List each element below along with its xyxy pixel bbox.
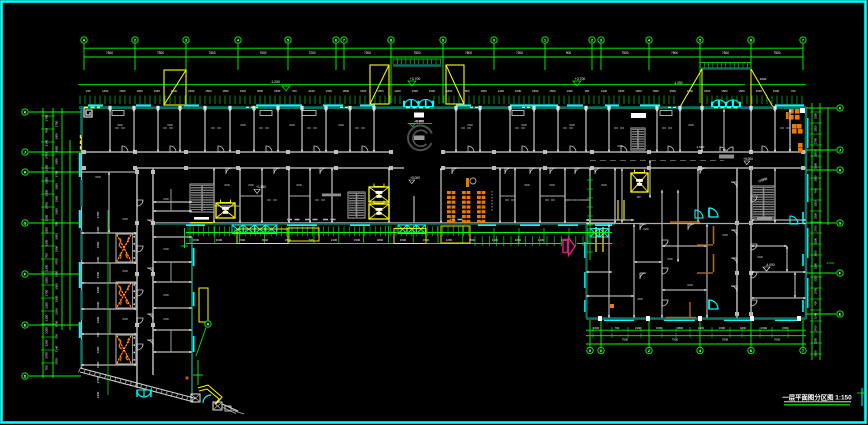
svg-text:7500: 7500 — [208, 51, 215, 55]
svg-text:2: 2 — [648, 349, 650, 353]
svg-text:1500: 1500 — [480, 89, 487, 93]
svg-text:DT: DT — [637, 195, 641, 199]
svg-text:1500: 1500 — [782, 326, 788, 330]
svg-text:2260: 2260 — [45, 339, 49, 346]
svg-text:1500: 1500 — [360, 89, 367, 93]
svg-text:G: G — [24, 221, 27, 225]
svg-text:3300: 3300 — [814, 162, 818, 169]
svg-text:1500: 1500 — [515, 89, 522, 93]
svg-text:7500: 7500 — [259, 51, 266, 55]
svg-text:3300: 3300 — [467, 123, 473, 127]
svg-text:3300: 3300 — [814, 212, 818, 219]
svg-text:1500: 1500 — [205, 89, 212, 93]
svg-text:2700: 2700 — [45, 289, 49, 296]
svg-text:3300: 3300 — [814, 262, 818, 269]
svg-text:4: 4 — [648, 38, 650, 42]
svg-text:1: 1 — [544, 38, 546, 42]
svg-text:1500: 1500 — [635, 89, 642, 93]
svg-text:1500: 1500 — [593, 326, 599, 330]
svg-text:3300: 3300 — [338, 123, 344, 127]
svg-text:1500: 1500 — [773, 89, 780, 93]
svg-text:2260: 2260 — [814, 275, 818, 282]
svg-text:6: 6 — [335, 38, 337, 42]
svg-text:3300: 3300 — [45, 327, 49, 334]
svg-text:1500: 1500 — [698, 326, 704, 330]
svg-text:1500: 1500 — [719, 326, 725, 330]
svg-text:3300: 3300 — [55, 283, 59, 290]
svg-text:7: 7 — [802, 349, 804, 353]
svg-text:3300: 3300 — [96, 346, 100, 353]
svg-text:+3.700: +3.700 — [575, 77, 586, 81]
svg-text:700: 700 — [615, 326, 620, 330]
svg-text:3300: 3300 — [637, 297, 643, 301]
svg-text:2: 2 — [591, 38, 593, 42]
svg-text:7200: 7200 — [308, 51, 315, 55]
svg-text:700: 700 — [96, 332, 100, 337]
svg-text:3300: 3300 — [122, 269, 128, 273]
svg-text:1500: 1500 — [721, 89, 728, 93]
svg-text:0: 0 — [600, 349, 602, 353]
svg-text:2700: 2700 — [96, 211, 100, 218]
svg-text:1500: 1500 — [216, 238, 223, 242]
svg-text:3300: 3300 — [55, 158, 59, 165]
svg-text:700: 700 — [45, 128, 49, 133]
svg-text:3300: 3300 — [643, 227, 649, 231]
svg-text:2700: 2700 — [814, 137, 818, 144]
svg-text:5: 5 — [287, 38, 289, 42]
svg-text:7500: 7500 — [621, 51, 628, 55]
svg-text:4500: 4500 — [257, 89, 264, 93]
svg-text:J: J — [839, 148, 841, 152]
svg-text:3300: 3300 — [96, 361, 100, 368]
svg-text:3300: 3300 — [240, 123, 246, 127]
svg-text:3300: 3300 — [667, 257, 673, 261]
svg-text:7500: 7500 — [774, 337, 781, 341]
svg-text:9: 9 — [442, 38, 444, 42]
svg-text:150: 150 — [86, 89, 91, 93]
svg-text:1500: 1500 — [136, 89, 143, 93]
svg-text:3700: 3700 — [45, 352, 49, 359]
svg-text:700: 700 — [292, 89, 297, 93]
svg-text:-3.600: -3.600 — [826, 261, 835, 265]
svg-text:3: 3 — [600, 38, 602, 42]
svg-text:3300: 3300 — [549, 183, 555, 187]
svg-text:1500: 1500 — [326, 89, 333, 93]
svg-text:4: 4 — [699, 349, 701, 353]
svg-text:1500: 1500 — [492, 238, 499, 242]
svg-text:3300: 3300 — [55, 195, 59, 202]
svg-text:3300: 3300 — [814, 337, 818, 344]
svg-text:3300: 3300 — [296, 183, 302, 187]
svg-text:7500: 7500 — [671, 51, 678, 55]
svg-text:2100: 2100 — [635, 326, 641, 330]
svg-text:5: 5 — [699, 38, 701, 42]
svg-text:8: 8 — [390, 38, 392, 42]
svg-text:3300: 3300 — [814, 237, 818, 244]
svg-text:4: 4 — [237, 38, 239, 42]
svg-text:3300: 3300 — [289, 123, 295, 127]
svg-text:3300: 3300 — [122, 317, 128, 321]
svg-text:2700: 2700 — [45, 202, 49, 209]
svg-text:+0.250: +0.250 — [414, 119, 424, 123]
svg-text:700: 700 — [814, 301, 818, 306]
svg-text:0: 0 — [493, 38, 495, 42]
svg-text:700: 700 — [814, 188, 818, 193]
svg-text:1200: 1200 — [446, 238, 453, 242]
svg-text:7500: 7500 — [722, 51, 729, 55]
svg-text:3300: 3300 — [45, 164, 49, 171]
svg-text:3: 3 — [185, 38, 187, 42]
svg-text:7: 7 — [802, 38, 804, 42]
svg-text:1500: 1500 — [532, 89, 539, 93]
svg-text:G: G — [839, 221, 842, 225]
svg-text:+0.000: +0.000 — [743, 157, 753, 161]
svg-text:1500: 1500 — [274, 89, 281, 93]
svg-text:3300: 3300 — [248, 183, 254, 187]
svg-text:1500: 1500 — [154, 89, 161, 93]
svg-text:J: J — [24, 150, 26, 154]
svg-text:3300: 3300 — [45, 314, 49, 321]
svg-text:1400: 1400 — [566, 89, 573, 93]
svg-text:3300: 3300 — [45, 264, 49, 271]
svg-text:3300: 3300 — [55, 233, 59, 240]
svg-text:1500: 1500 — [618, 89, 625, 93]
svg-text:7500: 7500 — [622, 337, 629, 341]
svg-text:-1.200: -1.200 — [270, 80, 280, 84]
svg-text:7200: 7200 — [364, 51, 371, 55]
svg-text:1500: 1500 — [738, 89, 745, 93]
svg-text:2700: 2700 — [96, 376, 100, 383]
svg-text:3300: 3300 — [601, 183, 607, 187]
svg-text:700: 700 — [55, 221, 59, 226]
svg-text:7500: 7500 — [106, 51, 113, 55]
svg-text:一层平面图分区图 1:150: 一层平面图分区图 1:150 — [782, 393, 852, 402]
svg-text:2700: 2700 — [814, 325, 818, 332]
svg-text:1500: 1500 — [188, 89, 195, 93]
svg-text:1500: 1500 — [761, 326, 767, 330]
svg-text:7500: 7500 — [773, 51, 780, 55]
svg-text:+1.550: +1.550 — [256, 185, 266, 189]
svg-text:6: 6 — [750, 349, 752, 353]
svg-text:3300: 3300 — [687, 283, 693, 287]
svg-text:3300: 3300 — [757, 255, 763, 259]
svg-text:7500: 7500 — [157, 51, 164, 55]
svg-text:3300: 3300 — [814, 200, 818, 207]
svg-text:3300: 3300 — [45, 302, 49, 309]
svg-text:1500: 1500 — [656, 326, 662, 330]
svg-text:-1.500: -1.500 — [696, 145, 705, 149]
svg-text:3300: 3300 — [45, 277, 49, 284]
svg-text:3700: 3700 — [55, 320, 59, 327]
svg-text:3300: 3300 — [814, 112, 818, 119]
svg-text:3300: 3300 — [167, 123, 173, 127]
svg-text:3300: 3300 — [55, 145, 59, 152]
svg-text:700: 700 — [45, 253, 49, 258]
svg-text:1200: 1200 — [498, 89, 505, 93]
svg-text:9: 9 — [589, 349, 591, 353]
svg-text:3300: 3300 — [45, 177, 49, 184]
svg-text:7500: 7500 — [672, 337, 679, 341]
svg-text:1500: 1500 — [119, 89, 126, 93]
svg-text:7200: 7200 — [516, 51, 523, 55]
svg-text:2: 2 — [134, 38, 136, 42]
svg-text:3300: 3300 — [96, 241, 100, 248]
svg-text:1400: 1400 — [601, 89, 608, 93]
svg-text:3300: 3300 — [814, 125, 818, 132]
svg-text:3300: 3300 — [814, 175, 818, 182]
svg-text:3300: 3300 — [55, 245, 59, 252]
svg-text:4500: 4500 — [756, 89, 763, 93]
svg-text:3300: 3300 — [55, 208, 59, 215]
svg-text:7800: 7800 — [413, 51, 420, 55]
svg-text:3300: 3300 — [95, 175, 101, 179]
svg-text:2100: 2100 — [331, 238, 338, 242]
svg-text:7: 7 — [343, 38, 345, 42]
svg-text:3300: 3300 — [524, 183, 530, 187]
svg-text:3300: 3300 — [521, 123, 527, 127]
svg-text:3300: 3300 — [96, 391, 100, 398]
svg-text:1500: 1500 — [354, 238, 361, 242]
svg-text:4800: 4800 — [343, 89, 350, 93]
svg-text:3300: 3300 — [55, 183, 59, 190]
svg-text:5140: 5140 — [814, 312, 818, 319]
svg-text:1500: 1500 — [240, 89, 247, 93]
svg-text:3300: 3300 — [55, 133, 59, 140]
svg-text:1400: 1400 — [102, 89, 109, 93]
svg-text:3300: 3300 — [224, 183, 230, 187]
svg-text:3300: 3300 — [96, 226, 100, 233]
svg-text:1500: 1500 — [704, 89, 711, 93]
svg-text:2700: 2700 — [814, 225, 818, 232]
svg-text:+0.000: +0.000 — [410, 176, 420, 180]
svg-text:1500: 1500 — [412, 89, 419, 93]
svg-text:-4.000: -4.000 — [765, 263, 774, 267]
svg-text:3300: 3300 — [163, 247, 169, 251]
svg-text:2000: 2000 — [760, 77, 767, 81]
svg-text:3300: 3300 — [117, 123, 123, 127]
svg-text:3300: 3300 — [569, 123, 575, 127]
svg-text:3300: 3300 — [688, 123, 694, 127]
svg-text:3300: 3300 — [55, 270, 59, 277]
svg-text:3300: 3300 — [814, 250, 818, 257]
svg-text:1500: 1500 — [538, 238, 545, 242]
svg-text:+3.700: +3.700 — [410, 77, 421, 81]
svg-text:2700: 2700 — [55, 258, 59, 265]
svg-text:3300: 3300 — [45, 227, 49, 234]
svg-text:1500: 1500 — [377, 89, 384, 93]
svg-text:3300: 3300 — [96, 286, 100, 293]
svg-text:4500: 4500 — [262, 238, 269, 242]
svg-text:3700: 3700 — [45, 114, 49, 121]
svg-text:1500: 1500 — [193, 238, 200, 242]
svg-text:3300: 3300 — [55, 295, 59, 302]
svg-text:4800: 4800 — [677, 326, 683, 330]
svg-text:7500: 7500 — [722, 337, 729, 341]
svg-text:4500: 4500 — [670, 89, 677, 93]
svg-text:3300: 3300 — [45, 239, 49, 246]
svg-text:2700: 2700 — [55, 170, 59, 177]
svg-text:5140: 5140 — [45, 139, 49, 146]
svg-text:3300: 3300 — [163, 197, 169, 201]
svg-text:700: 700 — [791, 89, 796, 93]
svg-text:3300: 3300 — [814, 350, 818, 357]
svg-text:2700: 2700 — [55, 358, 59, 365]
svg-text:900: 900 — [566, 51, 572, 55]
svg-text:1500: 1500 — [652, 89, 659, 93]
svg-text:150: 150 — [584, 89, 589, 93]
svg-text:3300: 3300 — [163, 317, 169, 321]
svg-text:2100: 2100 — [308, 89, 315, 93]
svg-text:700: 700 — [55, 334, 59, 339]
svg-text:3300: 3300 — [617, 144, 623, 148]
svg-text:7500: 7500 — [465, 51, 472, 55]
svg-text:1200: 1200 — [394, 89, 401, 93]
svg-text:3300: 3300 — [96, 301, 100, 308]
svg-text:700: 700 — [45, 365, 49, 370]
svg-text:3300: 3300 — [45, 189, 49, 196]
svg-text:-1.250: -1.250 — [673, 81, 682, 85]
svg-text:1500: 1500 — [429, 89, 436, 93]
svg-text:1800: 1800 — [446, 89, 453, 93]
svg-text:3300: 3300 — [722, 233, 728, 237]
svg-text:1500: 1500 — [549, 89, 556, 93]
svg-text:1500: 1500 — [400, 238, 407, 242]
svg-text:2700: 2700 — [45, 152, 49, 159]
svg-text:3700: 3700 — [814, 287, 818, 294]
svg-text:4800: 4800 — [377, 238, 384, 242]
svg-text:1200: 1200 — [740, 326, 746, 330]
svg-text:1500: 1500 — [222, 89, 229, 93]
svg-text:3300: 3300 — [45, 214, 49, 221]
svg-text:3300: 3300 — [814, 150, 818, 157]
svg-text:2700: 2700 — [96, 271, 100, 278]
svg-text:3300: 3300 — [96, 256, 100, 263]
svg-text:3300: 3300 — [163, 293, 169, 297]
svg-text:2260: 2260 — [55, 308, 59, 315]
svg-text:3300: 3300 — [96, 316, 100, 323]
svg-text:6: 6 — [750, 38, 752, 42]
svg-text:3300: 3300 — [122, 217, 128, 221]
svg-text:5140: 5140 — [55, 345, 59, 352]
svg-text:2700: 2700 — [55, 120, 59, 127]
